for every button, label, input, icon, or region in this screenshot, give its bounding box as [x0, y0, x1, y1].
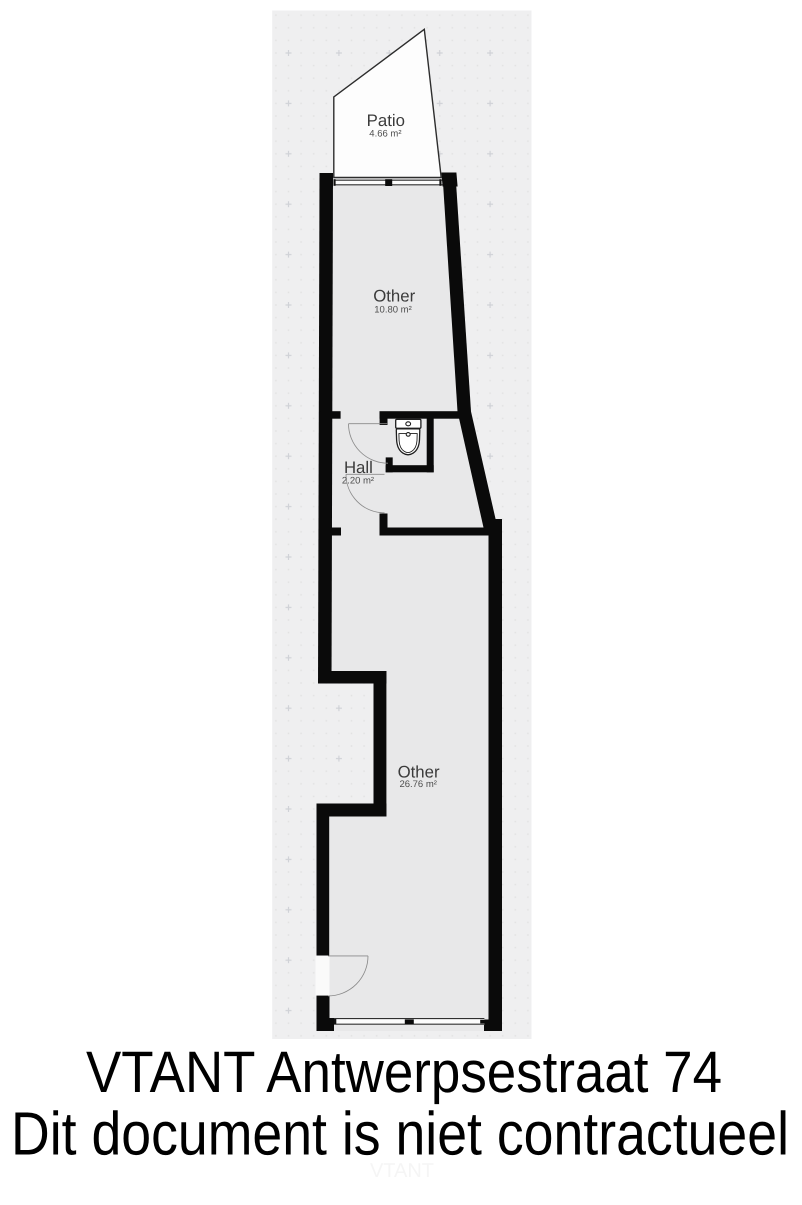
svg-text:Hall: Hall	[344, 458, 373, 477]
svg-text:10.80 m²: 10.80 m²	[374, 304, 412, 315]
svg-text:26.76 m²: 26.76 m²	[399, 779, 437, 790]
svg-text:4.66 m²: 4.66 m²	[369, 129, 401, 140]
svg-text:2.20 m²: 2.20 m²	[342, 476, 374, 487]
svg-text:Dit document is niet contractu: Dit document is niet contractueel	[11, 1099, 789, 1167]
svg-text:VTANT Antwerpsestraat 74: VTANT Antwerpsestraat 74	[86, 1040, 722, 1105]
svg-text:Patio: Patio	[367, 111, 405, 130]
svg-text:Other: Other	[373, 286, 415, 305]
